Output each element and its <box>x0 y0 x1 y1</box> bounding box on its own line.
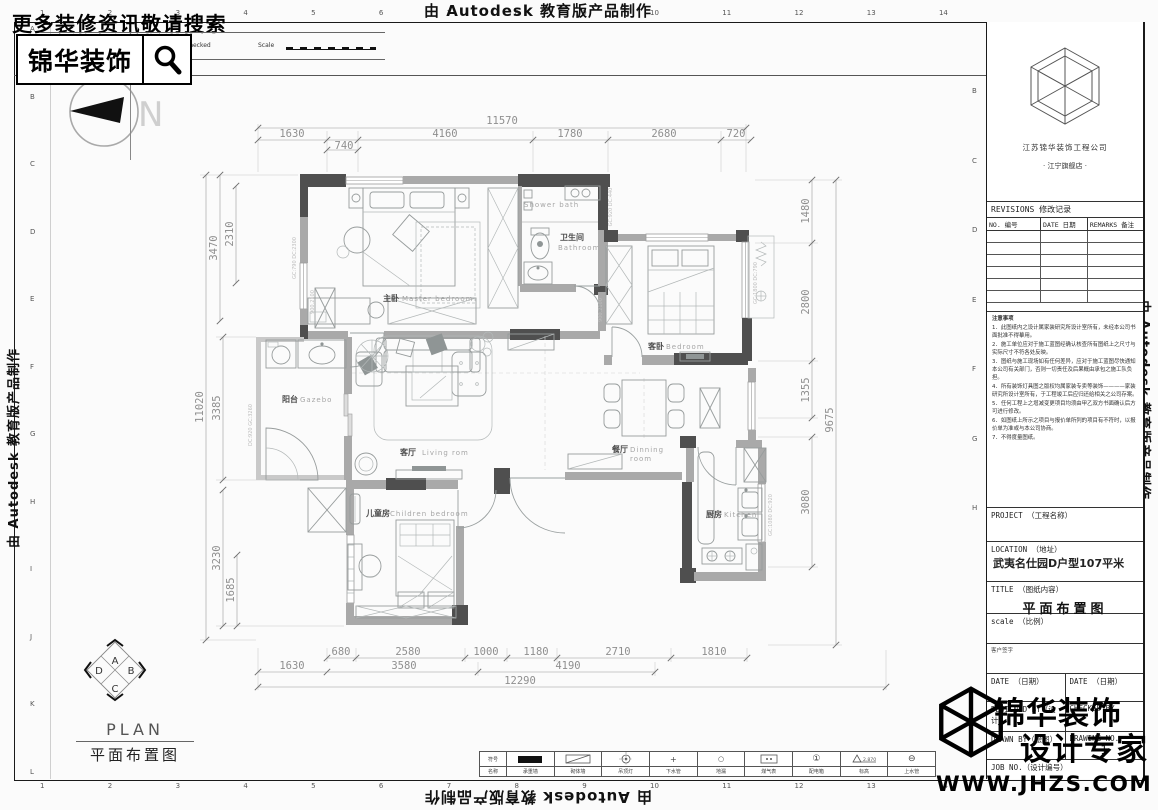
legend-item: +下水管 <box>649 752 697 776</box>
title-block: 江苏锦华装饰工程公司 · 江宁旗舰店 · REVISIONS 修改记录 NO. … <box>987 22 1144 779</box>
svg-text:1000: 1000 <box>473 646 498 658</box>
signature-field: 客户签字 <box>987 644 1143 674</box>
brand-line2: 设计专家 <box>1020 724 1148 769</box>
svg-text:2800: 2800 <box>800 289 812 314</box>
company-cube-logo <box>1025 44 1105 128</box>
title-field: TITLE （图纸内容） 平面布置图 <box>987 582 1143 614</box>
legend-item: ○地漏 <box>697 752 745 776</box>
north-letter: N <box>138 95 163 135</box>
scale-field: scale （比例） <box>987 614 1143 644</box>
plan-title-zh: 平面布置图 <box>70 744 200 765</box>
balcony-furniture <box>266 340 346 480</box>
svg-text:2580: 2580 <box>395 646 420 658</box>
svg-text:2680: 2680 <box>651 128 676 140</box>
label-bath-en: Bathroom <box>558 244 600 252</box>
label-dining-zh: 餐厅 <box>611 444 628 454</box>
revision-row <box>987 231 1143 243</box>
svg-text:2310: 2310 <box>224 221 236 246</box>
svg-text:740: 740 <box>335 140 354 152</box>
svg-text:680: 680 <box>332 646 351 658</box>
scale-bar <box>286 44 376 50</box>
living-room-furniture <box>355 332 622 479</box>
revision-row <box>987 291 1143 303</box>
svg-text:3230: 3230 <box>211 545 223 570</box>
svg-text:1685: 1685 <box>225 577 237 602</box>
legend-item: 吊顶灯 <box>601 752 649 776</box>
solid-wall-icon <box>518 756 542 763</box>
water-supply-icon: ⊖ <box>888 752 935 766</box>
north-arrow-icon <box>70 97 124 123</box>
legend-header: 符号 名称 <box>480 752 506 776</box>
label-children-zh: 儿童房 <box>365 508 390 518</box>
brand-website: WWW.JHZS.COM <box>936 772 1152 797</box>
plan-title: PLAN 平面布置图 <box>70 720 200 765</box>
svg-text:GC:790 DC:2300: GC:790 DC:2300 <box>292 237 298 279</box>
promo-logo-text: 锦华装饰 <box>18 36 142 83</box>
svg-text:DC:920 GC:3260: DC:920 GC:3260 <box>248 404 254 446</box>
label-master-zh: 主卧 <box>383 293 399 303</box>
svg-text:1630: 1630 <box>279 660 304 672</box>
legend-item: ①配电箱 <box>792 752 840 776</box>
project-field: PROJECT （工程名称） <box>987 508 1143 542</box>
svg-text:4160: 4160 <box>432 128 457 140</box>
svg-text:B: B <box>128 666 135 677</box>
svg-text:2710: 2710 <box>605 646 630 658</box>
svg-text:12290: 12290 <box>504 675 536 687</box>
label-dining-en: Dinning <box>630 446 664 454</box>
svg-text:1480: 1480 <box>800 198 812 223</box>
svg-text:2.870: 2.870 <box>863 757 876 763</box>
company-name: 江苏锦华装饰工程公司 <box>987 142 1143 153</box>
plan-title-underline <box>76 741 194 742</box>
svg-text:900.2100: 900.2100 <box>310 290 316 314</box>
legend-item: 煤气表 <box>744 752 792 776</box>
legend-item: ⊖上水管 <box>887 752 935 776</box>
label-balcony-zh: 阳台 <box>282 394 298 404</box>
svg-text:4190: 4190 <box>555 660 580 672</box>
svg-text:11020: 11020 <box>194 391 206 423</box>
svg-text:1810: 1810 <box>701 646 726 658</box>
svg-text:1180: 1180 <box>523 646 548 658</box>
svg-text:720: 720 <box>727 128 746 140</box>
diagonal-wall-icon <box>565 754 591 764</box>
legend-bar: 符号 名称 承重墙 砌体墙 吊顶灯 +下水管 ○地漏 煤气表 ①配电箱 2.87… <box>479 751 936 777</box>
gas-meter-icon <box>760 754 778 764</box>
magnifier-icon <box>142 36 190 83</box>
drain-pipe-icon: + <box>650 752 697 766</box>
label-balcony-en: Gazebo <box>300 396 332 404</box>
svg-text:D: D <box>95 666 103 677</box>
floor-drain-icon: ○ <box>698 752 745 766</box>
ceiling-lamp-icon <box>619 752 633 766</box>
label-bath-zh: 卫生间 <box>560 232 584 242</box>
label-bedroom-en: Bedroom <box>666 343 705 351</box>
svg-text:GC:920 DC:440: GC:920 DC:440 <box>608 188 614 227</box>
legend-item: 2.870标高 <box>840 752 888 776</box>
label-master-en: Master bedroom <box>402 295 473 303</box>
label-living-zh: 客厅 <box>399 447 416 457</box>
notes-section: 注意事项 1．此图纸内之设计属家装研究所设计室所有，未经本公司书面批准不得摹用。… <box>987 312 1143 508</box>
brand-overlay: 锦华装饰 设计专家 WWW.JHZS.COM <box>936 676 1158 808</box>
label-children-en: Children bedroom <box>390 510 469 518</box>
store-name: · 江宁旗舰店 · <box>987 161 1143 171</box>
svg-text:A: A <box>112 656 119 667</box>
orientation-diamond: A B C D <box>85 640 145 700</box>
revisions-table: REVISIONS 修改记录 NO. 编号DATE 日期REMARKS 备注 <box>987 202 1143 312</box>
legend-item: 砌体墙 <box>554 752 602 776</box>
location-field: LOCATION （地址） 武夷名仕园D户型107平米 <box>987 542 1143 582</box>
svg-text:1630: 1630 <box>279 128 304 140</box>
label-living-en: Living rom <box>422 449 469 457</box>
svg-text:C: C <box>112 684 119 695</box>
north-compass: N <box>70 78 163 146</box>
master-bedroom-furniture <box>308 188 518 324</box>
label-bedroom-zh: 客卧 <box>647 341 664 351</box>
guide-lines <box>352 336 644 470</box>
label-kitchen-en: Kitchen <box>724 511 757 519</box>
distribution-box-icon: ① <box>793 752 840 766</box>
label-dining-en2: room <box>630 455 652 463</box>
doors <box>350 286 736 533</box>
label-kitchen-zh: 厨房 <box>706 509 722 519</box>
company-section: 江苏锦华装饰工程公司 · 江宁旗舰店 · <box>987 22 1143 202</box>
promo-logo-box: 锦华装饰 <box>16 34 192 85</box>
svg-text:GC:1800 DC:790: GC:1800 DC:790 <box>753 262 759 304</box>
revision-row <box>987 255 1143 267</box>
svg-text:3470: 3470 <box>208 235 220 260</box>
revision-row <box>987 279 1143 291</box>
svg-text:11570: 11570 <box>486 115 518 127</box>
svg-text:9675: 9675 <box>824 407 836 432</box>
location-value: 武夷名仕园D户型107平米 <box>987 555 1143 572</box>
svg-text:GC:1080 DC:920: GC:1080 DC:920 <box>768 494 774 536</box>
revision-row <box>987 267 1143 279</box>
svg-text:3580: 3580 <box>391 660 416 672</box>
svg-text:3385: 3385 <box>211 395 223 420</box>
plan-title-en: PLAN <box>70 720 200 739</box>
ac-platform <box>748 236 774 318</box>
elevation-icon: 2.870 <box>849 753 879 766</box>
svg-text:900.2100: 900.2100 <box>598 298 604 322</box>
label-shower: Shower bath <box>524 201 579 209</box>
legend-item: 承重墙 <box>506 752 554 776</box>
revision-row <box>987 243 1143 255</box>
svg-text:1780: 1780 <box>557 128 582 140</box>
walls <box>256 174 766 625</box>
shaft-boxes <box>308 288 766 532</box>
svg-text:1355: 1355 <box>800 377 812 402</box>
svg-text:3080: 3080 <box>800 489 812 514</box>
